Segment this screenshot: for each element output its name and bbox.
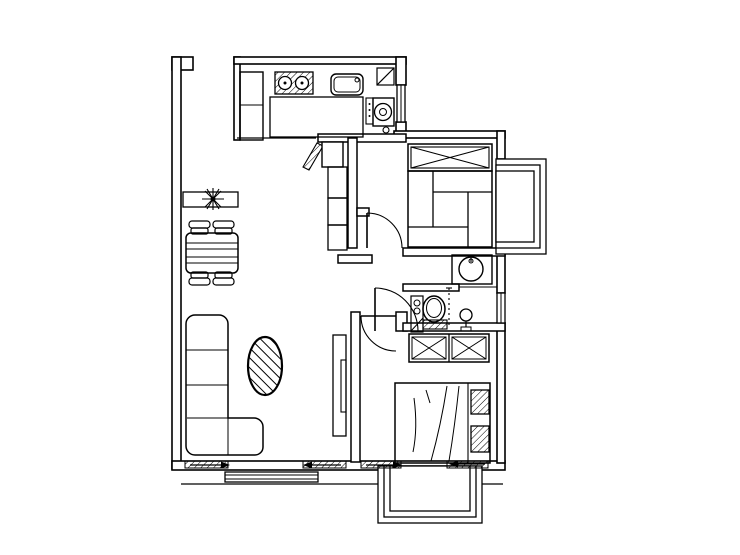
kitchen-sink <box>331 74 363 95</box>
bay-window-east <box>496 159 546 254</box>
cooktop <box>275 72 313 94</box>
rug <box>248 337 282 395</box>
bay-window-south <box>378 466 482 523</box>
plant <box>202 188 224 210</box>
floor-plan-canvas <box>0 0 740 555</box>
paper-background <box>0 0 740 555</box>
floor-plan-page <box>0 0 740 555</box>
